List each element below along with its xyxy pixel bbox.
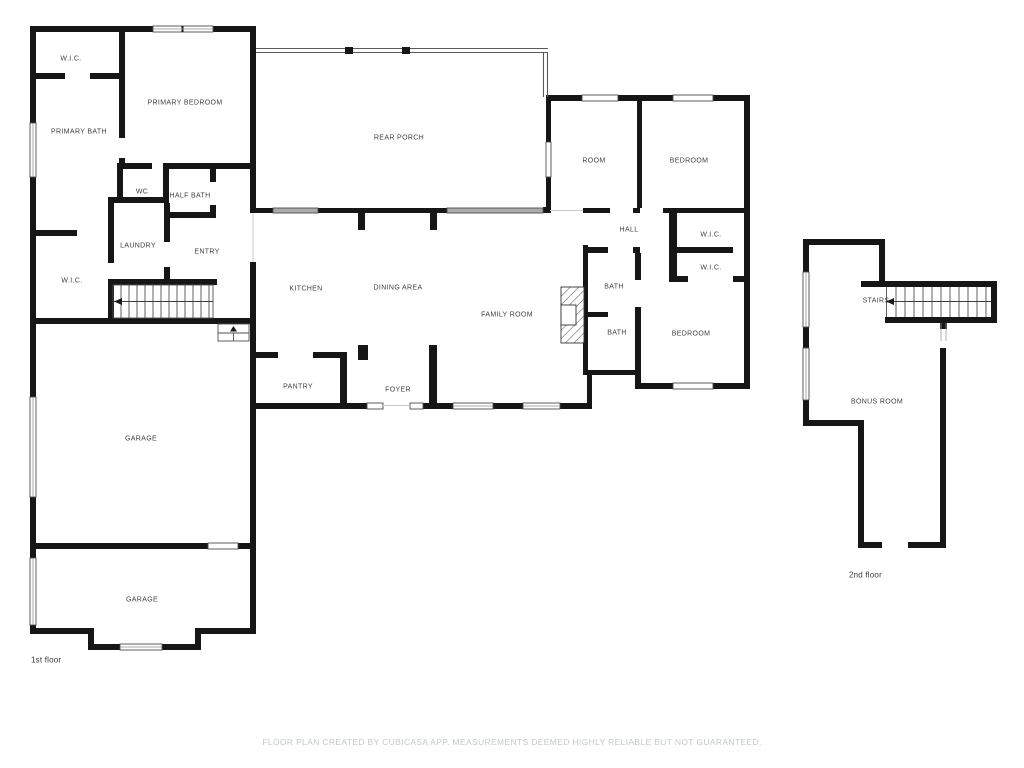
porch-screen-walls	[256, 47, 548, 97]
room-label-garage-main: GARAGE	[125, 436, 157, 443]
floorplan-canvas: W.I.C. PRIMARY BEDROOM PRIMARY BATH REAR…	[0, 0, 1024, 768]
staircase-1st-floor	[113, 285, 213, 318]
room-label-kitchen: KITCHEN	[289, 286, 322, 293]
room-label-room: ROOM	[582, 158, 605, 165]
floor2-caption: 2nd floor	[849, 571, 882, 580]
room-label-wic-right2: W.I.C.	[700, 265, 721, 272]
walls-1st-floor	[30, 26, 750, 650]
disclaimer-text: FLOOR PLAN CREATED BY CUBICASA APP. MEAS…	[262, 737, 761, 747]
room-label-primary-bedroom: PRIMARY BEDROOM	[147, 100, 222, 107]
floorplan-drawing	[0, 0, 1024, 768]
walls-2nd-floor	[803, 239, 997, 548]
room-label-bath-upper: BATH	[604, 284, 624, 291]
room-label-bedroom-right: BEDROOM	[672, 331, 711, 338]
room-label-pantry: PANTRY	[283, 384, 313, 391]
room-label-half-bath: HALF BATH	[169, 193, 210, 200]
windows	[30, 26, 809, 650]
room-label-wic-right1: W.I.C.	[700, 232, 721, 239]
room-label-laundry: LAUNDRY	[120, 243, 156, 250]
floor1-caption: 1st floor	[31, 656, 61, 665]
room-label-bath-lower: BATH	[607, 330, 627, 337]
room-label-primary-bath: PRIMARY BATH	[51, 129, 107, 136]
room-label-wic-left: W.I.C.	[61, 278, 82, 285]
room-label-wc: WC	[136, 189, 148, 196]
room-label-bedroom-top: BEDROOM	[670, 158, 709, 165]
room-label-foyer: FOYER	[385, 387, 411, 394]
room-label-wic-top: W.I.C.	[60, 56, 81, 63]
room-label-hall: HALL	[620, 227, 639, 234]
room-label-rear-porch: REAR PORCH	[374, 135, 424, 142]
garage-step-landing	[218, 324, 249, 341]
room-label-entry: ENTRY	[194, 249, 219, 256]
fireplace	[561, 287, 584, 343]
staircase-2nd-floor	[886, 287, 991, 317]
room-label-dining-area: DINING AREA	[374, 285, 423, 292]
room-label-stairs: STAIRS	[863, 298, 890, 305]
room-label-bonus-room: BONUS ROOM	[851, 399, 903, 406]
room-label-family-room: FAMILY ROOM	[481, 312, 533, 319]
room-label-garage-front: GARAGE	[126, 597, 158, 604]
